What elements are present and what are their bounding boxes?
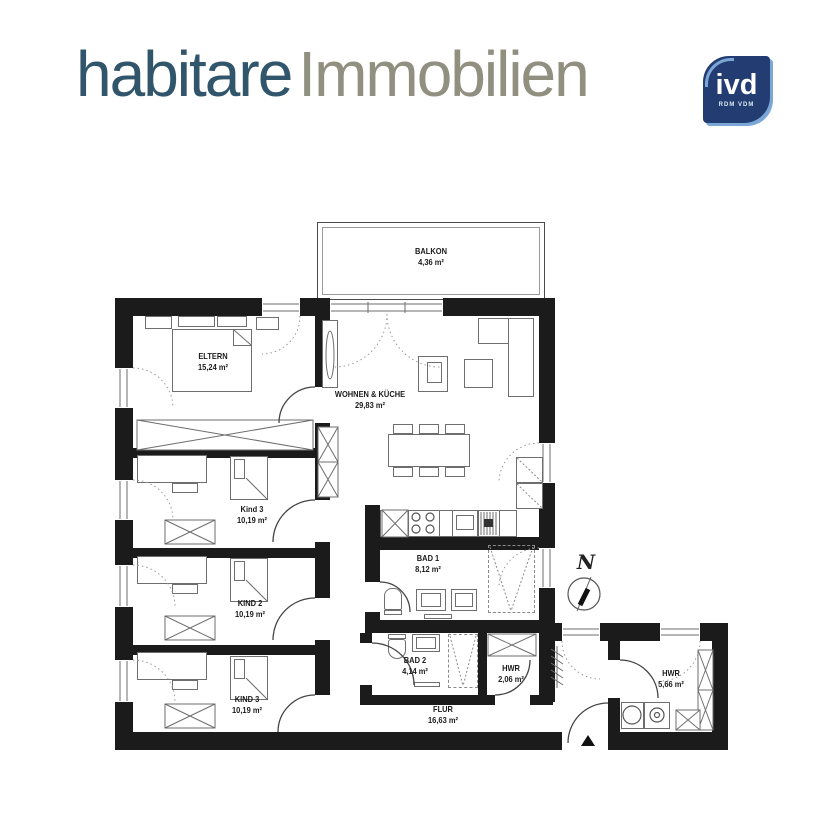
window-swing-arc: [262, 316, 300, 354]
window-swing-arc: [499, 548, 539, 588]
cooktop-mark: [484, 519, 493, 527]
window-swing-arc: [387, 314, 440, 367]
room-label-hwr-gross: HWR 5,66 m²: [627, 668, 715, 690]
room-label-kind3-oben: Kind 3 10,19 m²: [208, 504, 296, 526]
window-swing-arc: [334, 314, 387, 367]
detail-line: [246, 478, 267, 499]
room-label-bad1: BAD 1 8,12 m²: [384, 553, 472, 575]
appliance-circle: [655, 713, 660, 718]
window-swing-arc: [133, 565, 175, 607]
appliance-circle: [412, 525, 420, 533]
room-label-kind3-unten: KIND 3 10,19 m²: [203, 694, 291, 716]
door-swing-arc: [380, 582, 410, 612]
page: habitareImmobilien ivd RDM VDM BALKON 4,…: [0, 0, 840, 838]
detail-line: [234, 330, 251, 345]
room-label-bad2: BAD 2 4,14 m²: [371, 655, 459, 677]
window-swing-arc: [562, 641, 600, 679]
dashed-detail-line: [511, 547, 533, 611]
appliance-circle: [412, 513, 420, 521]
dashed-detail-line: [517, 484, 542, 508]
window-swing-arc: [499, 443, 539, 483]
room-label-balkon: BALKON 4,36 m²: [387, 246, 475, 268]
room-label-flur: FLUR 16,63 m²: [399, 704, 487, 726]
dashed-detail-line: [517, 458, 542, 482]
appliance-circle: [623, 706, 641, 724]
radiator-lens: [326, 331, 334, 379]
room-label-kind2: KIND 2 10,19 m²: [206, 598, 294, 620]
door-swing-arc: [279, 387, 315, 423]
window-swing-arc: [133, 660, 175, 702]
north-arrow-label: N: [574, 550, 598, 574]
dashed-detail-line: [490, 547, 511, 611]
window-swing-arc: [133, 368, 173, 408]
room-label-hwr-klein: HWR 2,06 m²: [467, 663, 555, 685]
appliance-circle: [650, 708, 664, 722]
entrance-marker: [581, 735, 595, 746]
room-label-eltern: ELTERN 15,24 m²: [169, 351, 257, 373]
north-needle-thick: [580, 589, 588, 605]
appliance-circle: [426, 513, 434, 521]
window-swing-arc: [133, 480, 173, 520]
appliance-circle: [426, 525, 434, 533]
room-label-wohnen-kueche: WOHNEN & KÜCHE 29,83 m²: [326, 389, 414, 411]
